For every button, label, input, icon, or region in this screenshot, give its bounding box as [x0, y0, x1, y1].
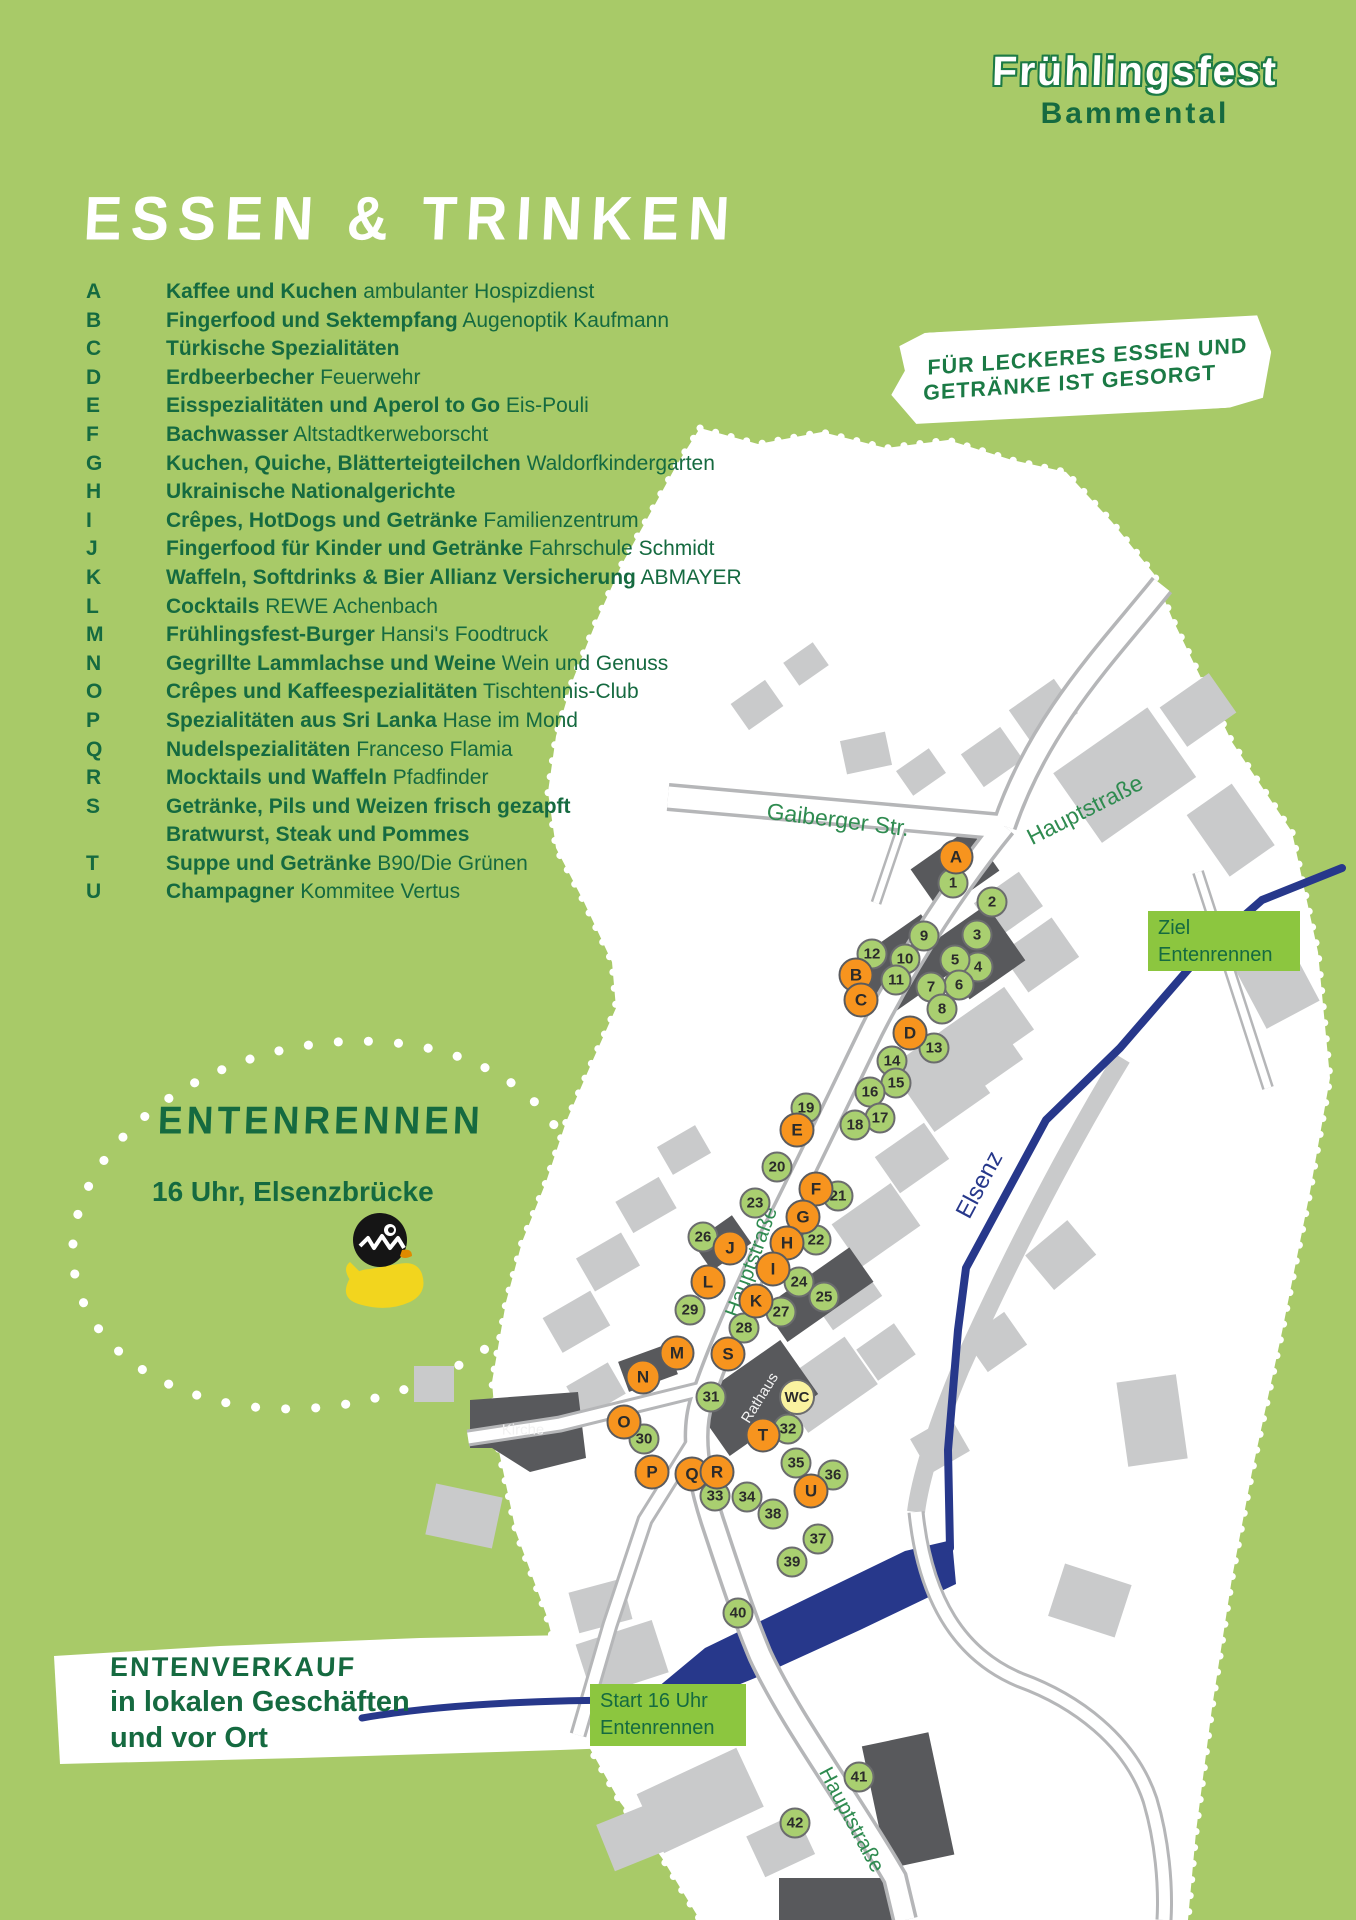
stand-marker-25: 25	[809, 1282, 840, 1313]
legend-row-G: GKuchen, Quiche, Blätterteigteilchen Wal…	[86, 450, 706, 479]
legend-letter: R	[86, 764, 166, 793]
legend-letter: I	[86, 507, 166, 536]
legend-text: Frühlingsfest-Burger Hansi's Foodtruck	[166, 621, 548, 650]
duck-race-heading: ENTENRENNEN	[157, 1099, 484, 1143]
legend-letter	[86, 821, 166, 850]
stand-marker-37: 37	[803, 1524, 834, 1555]
legend-text: Bachwasser Altstadtkerweborscht	[166, 421, 488, 450]
stand-marker-K: K	[739, 1284, 774, 1319]
stand-marker-P: P	[635, 1455, 670, 1490]
legend-row-H: HUkrainische Nationalgerichte	[86, 478, 706, 507]
legend-row-R: RMocktails und Waffeln Pfadfinder	[86, 764, 706, 793]
legend-text: Ukrainische Nationalgerichte	[166, 478, 455, 507]
stand-marker-E: E	[780, 1113, 815, 1148]
stand-marker-A: A	[939, 840, 974, 875]
legend-text: Türkische Spezialitäten	[166, 335, 399, 364]
legend-row-N: NGegrillte Lammlachse und Weine Wein und…	[86, 650, 706, 679]
page-title: ESSEN & TRINKEN	[82, 183, 740, 254]
stand-marker-39: 39	[777, 1547, 808, 1578]
legend-letter: J	[86, 535, 166, 564]
stand-marker-M: M	[660, 1336, 695, 1371]
legend-row-E: EEisspezialitäten und Aperol to Go Eis-P…	[86, 392, 706, 421]
logo-line2: Bammental	[960, 97, 1310, 131]
stand-marker-38: 38	[758, 1499, 789, 1530]
map-label-kirche: Kirche	[502, 1422, 545, 1439]
stand-marker-R: R	[700, 1455, 735, 1490]
legend-row-B: BFingerfood und Sektempfang Augenoptik K…	[86, 307, 706, 336]
legend-letter: A	[86, 278, 166, 307]
duck-sale-heading: ENTENVERKAUF	[109, 1652, 356, 1683]
festival-logo: Frühlingsfest Bammental	[960, 48, 1310, 131]
legend-text: Crêpes und Kaffeespezialitäten Tischtenn…	[166, 678, 639, 707]
legend-row-F: FBachwasser Altstadtkerweborscht	[86, 421, 706, 450]
legend-letter: P	[86, 707, 166, 736]
legend-letter: B	[86, 307, 166, 336]
start-line1: Start 16 Uhr	[600, 1688, 736, 1715]
ziel-line1: Ziel	[1158, 915, 1290, 942]
legend-text: Cocktails REWE Achenbach	[166, 593, 438, 622]
legend-row-O: OCrêpes und Kaffeespezialitäten Tischten…	[86, 678, 706, 707]
legend-letter: N	[86, 650, 166, 679]
legend-row-S: SGetränke, Pils und Weizen frisch gezapf…	[86, 793, 706, 822]
stand-marker-N: N	[626, 1360, 661, 1395]
stand-marker-18: 18	[840, 1110, 871, 1141]
stand-marker-2: 2	[977, 887, 1008, 918]
legend-letter: H	[86, 478, 166, 507]
legend-text: Fingerfood für Kinder und Getränke Fahrs…	[166, 535, 714, 564]
logo-line1: Frühlingsfest	[959, 48, 1311, 95]
legend-letter: O	[86, 678, 166, 707]
legend-text: Erdbeerbecher Feuerwehr	[166, 364, 420, 393]
legend-letter: L	[86, 593, 166, 622]
stand-marker-3: 3	[962, 920, 993, 951]
stand-marker-I: I	[756, 1252, 791, 1287]
ziel-line2: Entenrennen	[1158, 942, 1290, 969]
stand-marker-C: C	[844, 983, 879, 1018]
stand-marker-29: 29	[675, 1295, 706, 1326]
legend-text: Waffeln, Softdrinks & Bier Allianz Versi…	[166, 564, 742, 593]
legend-row-M: MFrühlingsfest-Burger Hansi's Foodtruck	[86, 621, 706, 650]
legend-letter: S	[86, 793, 166, 822]
legend-letter: M	[86, 621, 166, 650]
legend-text: Fingerfood und Sektempfang Augenoptik Ka…	[166, 307, 669, 336]
legend-text: Spezialitäten aus Sri Lanka Hase im Mond	[166, 707, 578, 736]
legend-row-C: CTürkische Spezialitäten	[86, 335, 706, 364]
legend-text: Mocktails und Waffeln Pfadfinder	[166, 764, 488, 793]
stand-marker-41: 41	[844, 1762, 875, 1793]
festival-poster: Frühlingsfest Bammental ESSEN & TRINKEN …	[0, 0, 1356, 1920]
legend-letter: G	[86, 450, 166, 479]
legend-text: Kuchen, Quiche, Blätterteigteilchen Wald…	[166, 450, 715, 479]
rubber-duck-image	[338, 1202, 430, 1317]
stand-marker-D: D	[893, 1016, 928, 1051]
legend-row-U: UChampagner Kommitee Vertus	[86, 878, 706, 907]
legend-letter: Q	[86, 736, 166, 765]
legend-row-I: ICrêpes, HotDogs und Getränke Familienze…	[86, 507, 706, 536]
legend-row-S-cont: Bratwurst, Steak und Pommes	[86, 821, 706, 850]
legend-row-J: JFingerfood für Kinder und Getränke Fahr…	[86, 535, 706, 564]
stand-marker-20: 20	[762, 1152, 793, 1183]
legend-row-Q: QNudelspezialitäten Franceso Flamia	[86, 736, 706, 765]
finish-line-box: Ziel Entenrennen	[1148, 911, 1300, 971]
stand-marker-8: 8	[927, 994, 958, 1025]
stand-marker-23: 23	[740, 1188, 771, 1219]
duck-sale-line2: und vor Ort	[110, 1722, 268, 1755]
legend-row-P: PSpezialitäten aus Sri Lanka Hase im Mon…	[86, 707, 706, 736]
legend-text: Bratwurst, Steak und Pommes	[166, 821, 469, 850]
legend-text: Crêpes, HotDogs und Getränke Familienzen…	[166, 507, 639, 536]
stand-marker-L: L	[691, 1265, 726, 1300]
legend-letter: U	[86, 878, 166, 907]
stand-marker-11: 11	[881, 965, 912, 996]
legend-row-D: DErdbeerbecher Feuerwehr	[86, 364, 706, 393]
start-line-box: Start 16 Uhr Entenrennen	[590, 1684, 746, 1746]
duck-sale-line1: in lokalen Geschäften	[110, 1686, 410, 1719]
legend-letter: K	[86, 564, 166, 593]
legend-text: Champagner Kommitee Vertus	[166, 878, 460, 907]
food-drink-legend: AKaffee und Kuchen ambulanter Hospizdien…	[86, 278, 706, 907]
stand-marker-J: J	[713, 1231, 748, 1266]
legend-letter: C	[86, 335, 166, 364]
legend-text: Kaffee und Kuchen ambulanter Hospizdiens…	[166, 278, 594, 307]
legend-letter: F	[86, 421, 166, 450]
legend-text: Getränke, Pils und Weizen frisch gezapft	[166, 793, 571, 822]
legend-text: Nudelspezialitäten Franceso Flamia	[166, 736, 513, 765]
legend-row-L: LCocktails REWE Achenbach	[86, 593, 706, 622]
start-line2: Entenrennen	[600, 1715, 736, 1742]
legend-text: Eisspezialitäten und Aperol to Go Eis-Po…	[166, 392, 589, 421]
legend-letter: D	[86, 364, 166, 393]
stand-marker-42: 42	[780, 1808, 811, 1839]
stand-marker-S: S	[711, 1337, 746, 1372]
legend-letter: E	[86, 392, 166, 421]
stand-marker-O: O	[607, 1405, 642, 1440]
stand-marker-WC: WC	[779, 1379, 815, 1415]
legend-text: Suppe und Getränke B90/Die Grünen	[166, 850, 528, 879]
legend-row-A: AKaffee und Kuchen ambulanter Hospizdien…	[86, 278, 706, 307]
stand-marker-40: 40	[723, 1598, 754, 1629]
stand-marker-T: T	[746, 1418, 781, 1453]
legend-row-K: KWaffeln, Softdrinks & Bier Allianz Vers…	[86, 564, 706, 593]
stand-marker-U: U	[794, 1474, 829, 1509]
legend-text: Gegrillte Lammlachse und Weine Wein und …	[166, 650, 668, 679]
legend-letter: T	[86, 850, 166, 879]
stand-marker-31: 31	[696, 1382, 727, 1413]
legend-row-T: TSuppe und Getränke B90/Die Grünen	[86, 850, 706, 879]
